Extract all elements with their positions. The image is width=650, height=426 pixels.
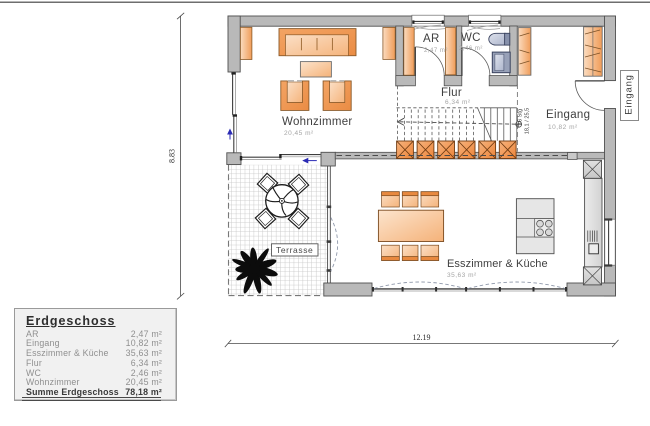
svg-text:18,1 / 25,5: 18,1 / 25,5 <box>524 108 530 134</box>
svg-text:Terrasse: Terrasse <box>276 245 313 255</box>
svg-text:8.83: 8.83 <box>168 149 177 163</box>
svg-text:12.19: 12.19 <box>413 333 431 342</box>
svg-text:16 Stg: 16 Stg <box>518 109 524 125</box>
